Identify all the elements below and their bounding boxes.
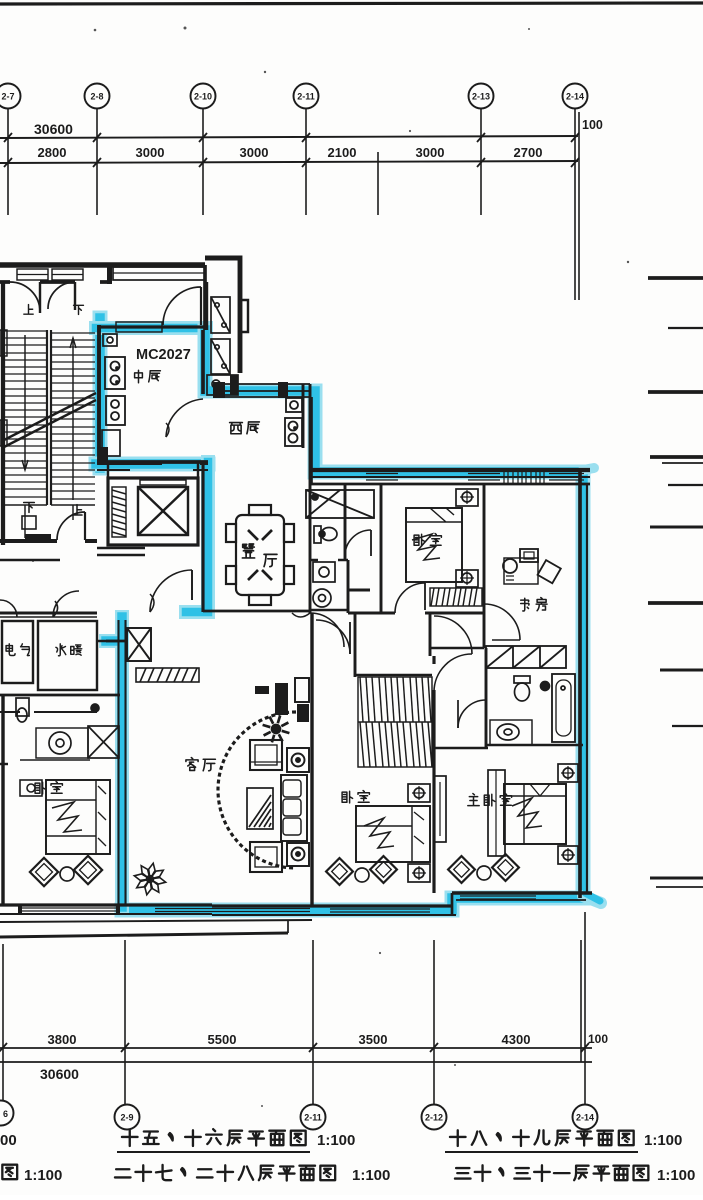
svg-text:2-9: 2-9 <box>120 1113 133 1123</box>
svg-text:30600: 30600 <box>40 1066 79 1082</box>
svg-text:2-12: 2-12 <box>425 1113 443 1123</box>
svg-text:1:100: 1:100 <box>24 1167 62 1184</box>
svg-text:5500: 5500 <box>208 1032 237 1047</box>
svg-text:2-11: 2-11 <box>304 1113 322 1123</box>
svg-text:100: 100 <box>582 118 603 132</box>
svg-text:2-13: 2-13 <box>472 92 490 102</box>
svg-text:00: 00 <box>0 1132 17 1149</box>
svg-text:2700: 2700 <box>514 145 543 160</box>
svg-text:MC2027: MC2027 <box>136 347 191 363</box>
svg-text:2-14: 2-14 <box>566 92 584 102</box>
svg-text:1:100: 1:100 <box>352 1167 390 1184</box>
svg-text:4300: 4300 <box>502 1032 531 1047</box>
svg-text:2-7: 2-7 <box>1 92 14 102</box>
svg-text:2800: 2800 <box>38 145 67 160</box>
svg-text:3000: 3000 <box>240 145 269 160</box>
svg-text:2-8: 2-8 <box>90 92 103 102</box>
svg-text:3800: 3800 <box>48 1032 77 1047</box>
svg-text:3000: 3000 <box>136 145 165 160</box>
svg-text:3500: 3500 <box>359 1032 388 1047</box>
svg-text:1:100: 1:100 <box>657 1167 695 1184</box>
svg-text:3000: 3000 <box>416 145 445 160</box>
svg-text:2100: 2100 <box>328 145 357 160</box>
svg-text:2-10: 2-10 <box>194 92 212 102</box>
svg-text:1:100: 1:100 <box>644 1132 682 1149</box>
svg-text:6: 6 <box>3 1109 8 1119</box>
svg-text:2-11: 2-11 <box>297 92 315 102</box>
svg-text:30600: 30600 <box>34 121 73 137</box>
svg-text:2-14: 2-14 <box>576 1113 594 1123</box>
svg-text:100: 100 <box>588 1032 608 1046</box>
svg-text:1:100: 1:100 <box>317 1132 355 1149</box>
